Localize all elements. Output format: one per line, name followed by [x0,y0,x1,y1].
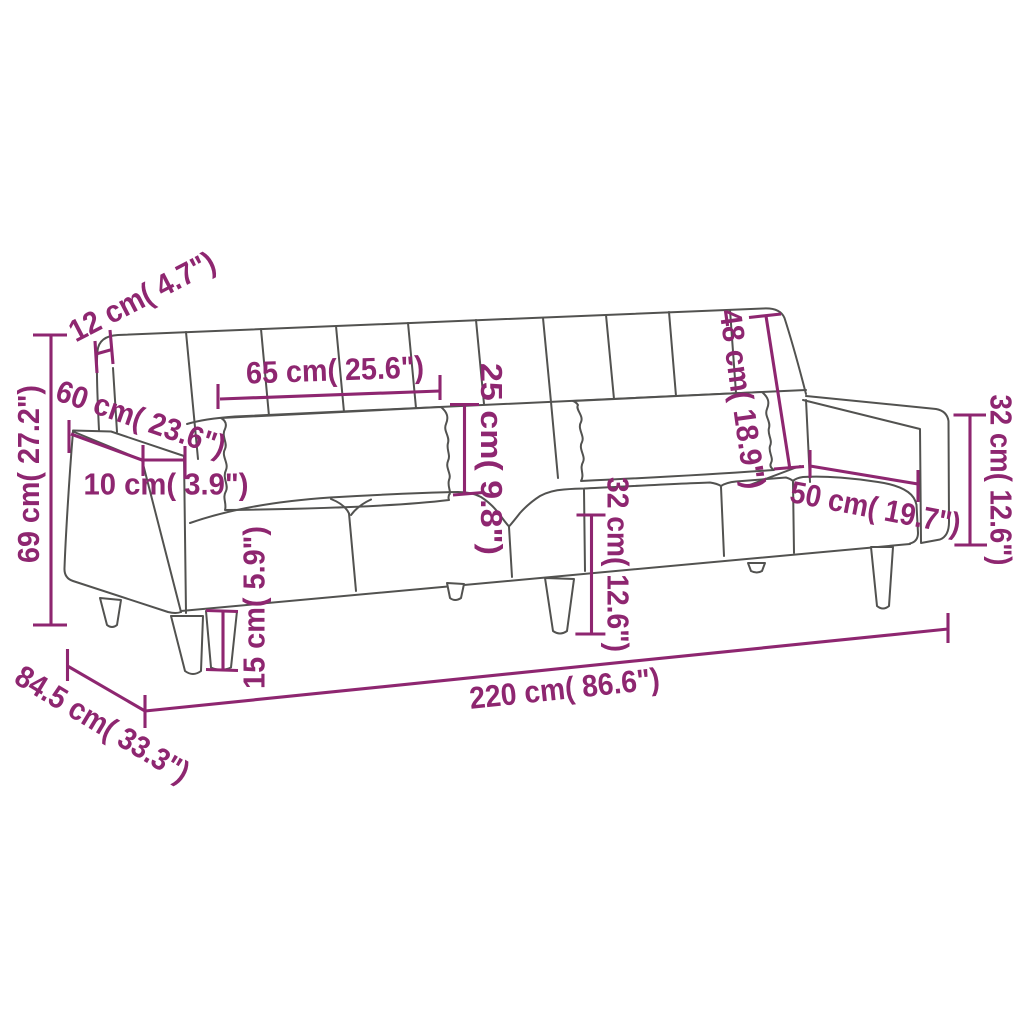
svg-text:69 cm( 27.2"): 69 cm( 27.2") [11,385,46,563]
svg-text:10 cm( 3.9"): 10 cm( 3.9") [84,467,249,502]
svg-text:25 cm( 9.8"): 25 cm( 9.8") [474,363,509,555]
svg-text:32 cm( 12.6"): 32 cm( 12.6") [984,395,1019,566]
svg-text:15 cm( 5.9"): 15 cm( 5.9") [237,526,272,689]
svg-text:65 cm( 25.6"): 65 cm( 25.6") [245,349,424,390]
svg-text:32 cm( 12.6"): 32 cm( 12.6") [601,477,636,652]
